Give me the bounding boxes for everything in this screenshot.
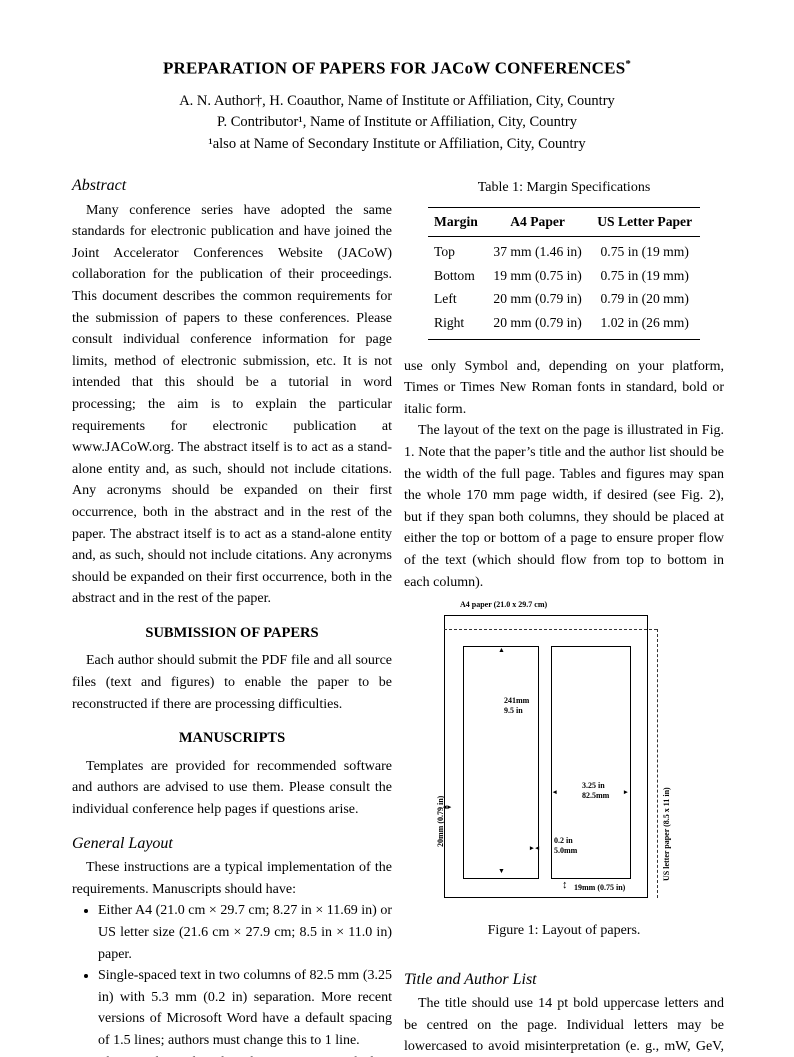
dimension-arrow-leftright-icon: ◂▸ [443, 804, 452, 811]
figure-label-column-gap: 0.2 in 5.0mm [554, 836, 577, 856]
dimension-arrow-left-icon: ◂ [553, 789, 557, 796]
table-row: Left20 mm (0.79 in)0.79 in (20 mm) [428, 287, 700, 311]
heading-abstract: Abstract [72, 175, 392, 197]
heading-submission: SUBMISSION OF PAPERS [72, 623, 392, 645]
author-line: A. N. Author†, H. Coauthor, Name of Inst… [0, 91, 794, 113]
table-header-cell: Margin [428, 207, 486, 237]
title-block: PREPARATION OF PAPERS FOR JACoW CONFEREN… [0, 58, 794, 155]
submission-text: Each author should submit the PDF file a… [72, 650, 392, 715]
heading-general-layout: General Layout [72, 833, 392, 855]
general-layout-bullets: Either A4 (21.0 cm × 29.7 cm; 8.27 in × … [82, 900, 392, 1057]
left-column: Abstract Many conference series have ado… [72, 175, 392, 1057]
general-layout-intro: These instructions are a typical impleme… [72, 857, 392, 900]
figure-label-a4: A4 paper (21.0 x 29.7 cm) [460, 600, 547, 610]
figure-label-bottom-margin: 19mm (0.75 in) [574, 883, 625, 893]
figure-label-column-height: 241mm 9.5 in [504, 696, 529, 716]
table-row: Bottom19 mm (0.75 in)0.75 in (19 mm) [428, 264, 700, 288]
table-header-row: Margin A4 Paper US Letter Paper [428, 207, 700, 237]
bullet-item: Either A4 (21.0 cm × 29.7 cm; 8.27 in × … [98, 900, 392, 965]
left-text-column-outline [463, 646, 539, 879]
bullet-item: The text located within the margins spec… [98, 1052, 392, 1057]
dimension-arrow-right-icon: ▸ [624, 789, 628, 796]
table-header-cell: US Letter Paper [589, 207, 700, 237]
right-column: Table 1: Margin Specifications Margin A4… [404, 175, 724, 1057]
figure-caption: Figure 1: Layout of papers. [404, 920, 724, 942]
bullet-item: Single-spaced text in two columns of 82.… [98, 965, 392, 1051]
author-list: A. N. Author†, H. Coauthor, Name of Inst… [0, 91, 794, 156]
abstract-text: Many conference series have adopted the … [72, 200, 392, 610]
figure-label-us-letter: US letter paper (8.5 x 11 in) [662, 691, 672, 881]
table-row: Top37 mm (1.46 in)0.75 in (19 mm) [428, 237, 700, 264]
two-column-body: Abstract Many conference series have ado… [72, 175, 724, 1057]
dimension-arrow-up-icon: ▲ [498, 647, 505, 654]
author-line: ¹also at Name of Secondary Institute or … [0, 134, 794, 156]
figure-label-column-width: 3.25 in 82.5mm [582, 781, 609, 801]
table-row: Right20 mm (0.79 in)1.02 in (26 mm) [428, 311, 700, 339]
page-title: PREPARATION OF PAPERS FOR JACoW CONFEREN… [0, 58, 794, 79]
dimension-arrow-updown-icon: ↕ [562, 880, 568, 891]
margin-table: Margin A4 Paper US Letter Paper Top37 mm… [428, 207, 700, 340]
heading-manuscripts: MANUSCRIPTS [72, 728, 392, 750]
title-footnote-mark: * [625, 58, 631, 70]
title-author-text: The title should use 14 pt bold uppercas… [404, 993, 724, 1057]
us-letter-right-edge [657, 629, 658, 898]
body-paragraph-continuation: use only Symbol and, depending on your p… [404, 356, 724, 421]
paper-page: PREPARATION OF PAPERS FOR JACoW CONFEREN… [0, 0, 794, 1057]
us-letter-top-edge [444, 629, 657, 630]
table-header-cell: A4 Paper [486, 207, 590, 237]
heading-title-author-list: Title and Author List [404, 969, 724, 991]
dimension-arrow-down-icon: ▼ [498, 868, 505, 875]
table-caption: Table 1: Margin Specifications [404, 177, 724, 199]
figure-layout-diagram: A4 paper (21.0 x 29.7 cm) US letter pape… [430, 599, 730, 911]
dimension-arrow-inward-icon: ▸◂ [530, 845, 541, 852]
body-paragraph-layout: The layout of the text on the page is il… [404, 420, 724, 593]
author-line: P. Contributor¹, Name of Institute or Af… [0, 112, 794, 134]
manuscripts-text: Templates are provided for recommended s… [72, 756, 392, 821]
figure-label-left-margin: 20mm (0.79 in) [436, 747, 446, 847]
